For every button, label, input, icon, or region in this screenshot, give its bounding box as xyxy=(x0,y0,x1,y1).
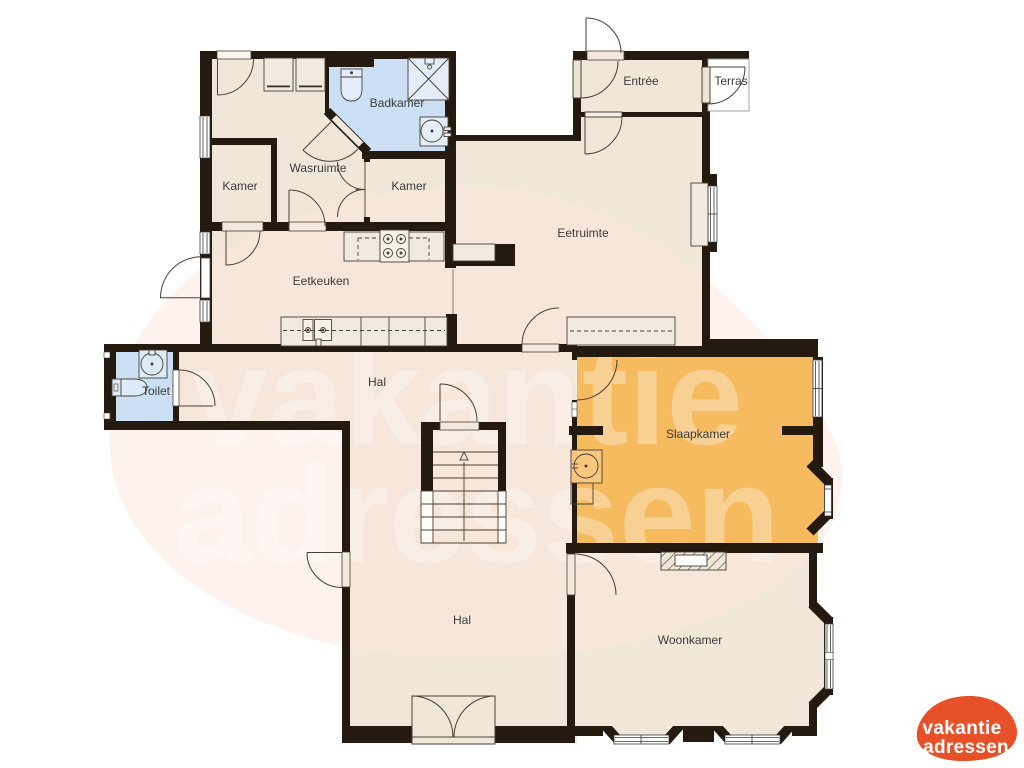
svg-text:Badkamer: Badkamer xyxy=(370,96,425,110)
svg-text:Hal: Hal xyxy=(368,375,386,389)
svg-text:Toilet: Toilet xyxy=(142,384,171,398)
svg-text:Woonkamer: Woonkamer xyxy=(658,633,722,647)
svg-text:Kamer: Kamer xyxy=(222,179,257,193)
svg-text:Terras: Terras xyxy=(714,74,747,88)
svg-text:Eetkeuken: Eetkeuken xyxy=(293,274,350,288)
svg-text:Kamer: Kamer xyxy=(391,179,426,193)
svg-text:Hal: Hal xyxy=(453,613,471,627)
svg-text:adressen: adressen xyxy=(923,737,1009,758)
svg-text:vakantie: vakantie xyxy=(922,718,1001,739)
svg-text:Slaapkamer: Slaapkamer xyxy=(666,427,730,441)
svg-text:Wasruimte: Wasruimte xyxy=(290,161,347,175)
svg-text:Entrée: Entrée xyxy=(623,74,659,88)
svg-text:Eetruimte: Eetruimte xyxy=(557,226,609,240)
